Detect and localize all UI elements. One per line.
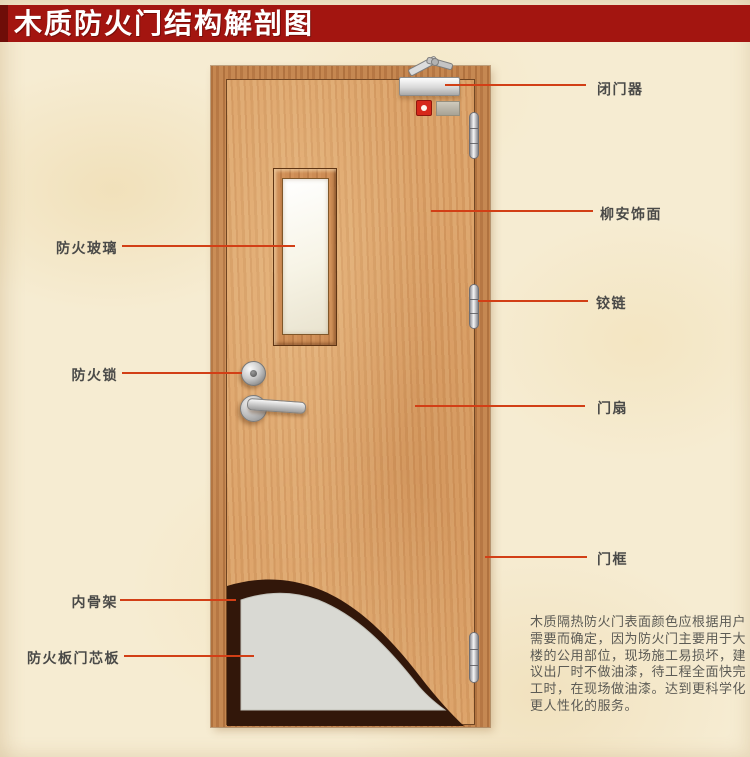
pointer-line-door-leaf [415, 405, 585, 407]
pointer-line-fire-glass [122, 245, 295, 247]
description-line: 更人性化的服务。 [530, 698, 735, 715]
description-line: 木质隔热防火门表面颜色应根据用户 [530, 614, 735, 631]
closer-mount-plate [436, 101, 460, 116]
pointer-line-inner-skeleton [120, 599, 236, 601]
description-line: 工时，在现场做油漆。达到更科学化 [530, 681, 735, 698]
page-title: 木质防火门结构解剖图 [14, 5, 314, 42]
hinge-top [469, 112, 479, 159]
description-text: 木质隔热防火门表面颜色应根据用户 需要而确定，因为防火门主要用于大 楼的公用部位… [530, 614, 735, 715]
label-door-leaf: 门扇 [597, 398, 628, 418]
hinge-middle [469, 284, 479, 329]
hinge-bottom [469, 632, 479, 683]
label-fire-glass: 防火玻璃 [56, 238, 118, 258]
title-banner: 木质防火门结构解剖图 [0, 5, 750, 42]
label-inner-skeleton: 内骨架 [72, 592, 119, 612]
cutaway-section [225, 576, 465, 726]
diagram-canvas: 木质防火门结构解剖图 闭门器 柳安饰面 铰链 门扇 门框 防 [0, 0, 750, 757]
description-line: 议出厂时不做油漆，待工程全面快完 [530, 664, 735, 681]
fire-glass-pane [282, 178, 329, 335]
fire-lock-cylinder [241, 361, 266, 386]
pointer-line-door-closer [445, 84, 586, 86]
label-door-closer: 闭门器 [597, 79, 644, 99]
description-line: 需要而确定，因为防火门主要用于大 [530, 631, 735, 648]
label-door-frame: 门框 [597, 549, 628, 569]
pointer-line-door-frame [485, 556, 587, 558]
alarm-indicator [416, 100, 432, 116]
pointer-line-fire-board-core [124, 655, 254, 657]
door-closer-body [399, 77, 460, 96]
description-line: 楼的公用部位，现场施工易损坏，建 [530, 648, 735, 665]
label-fire-lock: 防火锁 [72, 365, 119, 385]
pointer-line-fire-lock [122, 372, 242, 374]
pointer-line-lauan-veneer [431, 210, 593, 212]
label-fire-board-core: 防火板门芯板 [27, 648, 120, 668]
pointer-line-hinge [478, 300, 588, 302]
label-hinge: 铰链 [596, 293, 627, 313]
label-lauan-veneer: 柳安饰面 [600, 204, 662, 224]
